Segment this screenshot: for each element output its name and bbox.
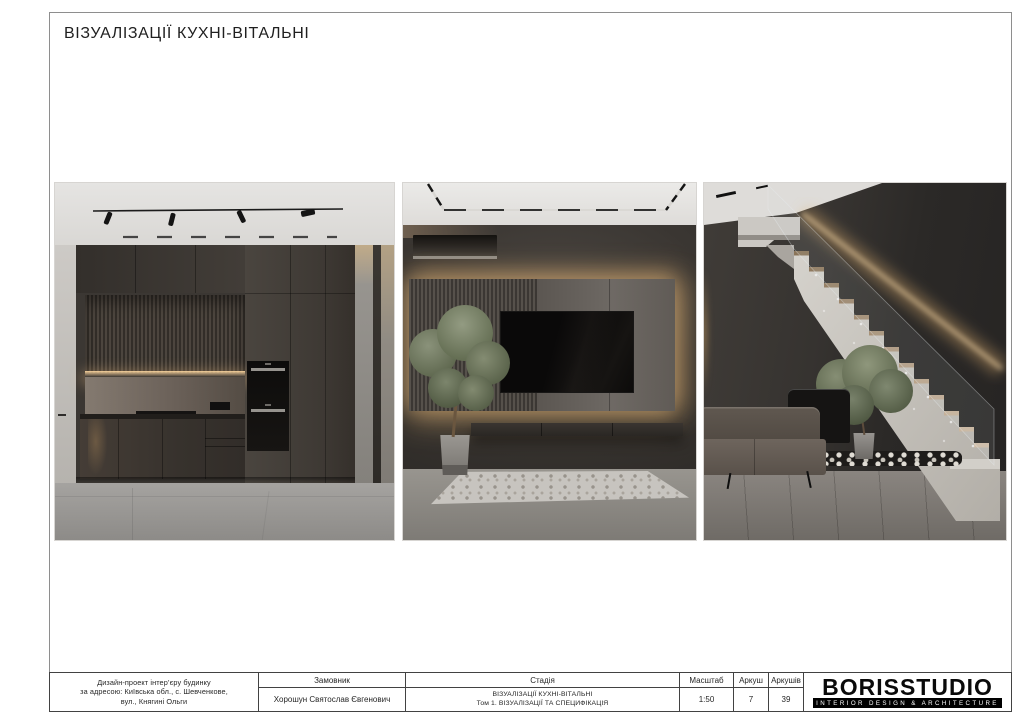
living-tv-reflection (501, 312, 633, 392)
sheets-total-label: Аркушів (769, 673, 804, 688)
living-media-console (471, 423, 683, 436)
kitchen-door-handle (58, 414, 66, 416)
page-title: ВІЗУАЛІЗАЦІЇ КУХНІ-ВІТАЛЬНІ (64, 25, 309, 43)
living-console-seam (612, 423, 613, 436)
living-plant-pot (439, 435, 471, 475)
render-kitchen (54, 182, 395, 541)
kitchen-cabinet-seam (162, 419, 163, 479)
stage-value: ВІЗУАЛІЗАЦІЇ КУХНІ-ВІТАЛЬНІ Том 1. ВІЗУА… (406, 688, 680, 711)
stairs-plant-pot (852, 433, 876, 459)
studio-logo-name: BORISSTUDIO (813, 676, 1002, 698)
living-tv (500, 311, 634, 393)
render-staircase (703, 182, 1007, 541)
kitchen-concrete-wall (55, 245, 77, 483)
kitchen-track-light (55, 183, 395, 253)
customer-label: Замовник (259, 673, 406, 688)
sheets-total-value: 39 (769, 688, 804, 711)
living-ceiling-track-lights (403, 183, 697, 225)
kitchen-cabinets (76, 245, 355, 483)
kitchen-oven-display (265, 404, 271, 406)
stage-value-line1: ВІЗУАЛІЗАЦІЇ КУХНІ-ВІТАЛЬНІ (492, 691, 592, 700)
project-address-line1: Дизайн-проект інтер’єру будинку (97, 678, 211, 688)
project-address-line2: за адресою: Київська обл., с. Шевченкове… (80, 687, 228, 697)
kitchen-socket (210, 402, 230, 410)
stage-label: Стадія (406, 673, 680, 688)
sheet-number-label: Аркуш (734, 673, 769, 688)
stage-value-line2: Том 1. ВІЗУАЛІЗАЦІЇ ТА СПЕЦИФІКАЦІЯ (477, 700, 609, 709)
kitchen-floor-seam (261, 491, 269, 541)
kitchen-oven-display (265, 363, 271, 365)
kitchen-oven-handle (251, 409, 285, 412)
living-console-seam (541, 423, 542, 436)
studio-logo-box: BORISSTUDIO INTERIOR DESIGN & ARCHITECTU… (813, 676, 1002, 708)
scale-value: 1:50 (680, 688, 734, 711)
stairs-sofa-seat (703, 439, 826, 475)
kitchen-cabinet-seam (325, 245, 326, 483)
kitchen-ovens (247, 361, 289, 451)
render-living-room (402, 182, 697, 541)
living-plant-pot-base (439, 465, 471, 475)
customer-value: Хорошун Святослав Євгенович (259, 688, 406, 711)
stairs-plant-foliage (869, 369, 913, 413)
studio-logo: BORISSTUDIO INTERIOR DESIGN & ARCHITECTU… (804, 673, 1011, 711)
kitchen-cabinet-seam (205, 419, 206, 479)
kitchen-cabinet-seam (245, 293, 355, 294)
scale-label: Масштаб (680, 673, 734, 688)
living-ac-vent (413, 256, 497, 259)
stairs-pebbles (822, 451, 962, 466)
living-plant-foliage (458, 375, 494, 411)
kitchen-corridor-wall (381, 245, 395, 483)
project-address-line3: вул., Княгині Ольги (121, 697, 187, 707)
kitchen-drawer-seam (205, 446, 245, 447)
kitchen-hob (136, 411, 196, 414)
kitchen-floor-seam (55, 496, 395, 497)
stairs-sofa-cushion-seam (754, 439, 755, 475)
kitchen-warm-reflection (88, 419, 114, 475)
project-address: Дизайн-проект інтер’єру будинку за адрес… (50, 673, 259, 711)
living-ac-unit (413, 235, 497, 259)
sheet-number-value: 7 (734, 688, 769, 711)
kitchen-floor (55, 483, 395, 541)
kitchen-cabinet-seam (118, 419, 119, 479)
kitchen-cabinet-seam (290, 245, 291, 483)
kitchen-right-panel (373, 245, 381, 483)
kitchen-drawer-seam (205, 438, 245, 439)
title-block: Дизайн-проект інтер’єру будинку за адрес… (49, 672, 1012, 712)
kitchen-fluted-panel (85, 295, 245, 373)
kitchen-oven-handle (251, 368, 285, 371)
